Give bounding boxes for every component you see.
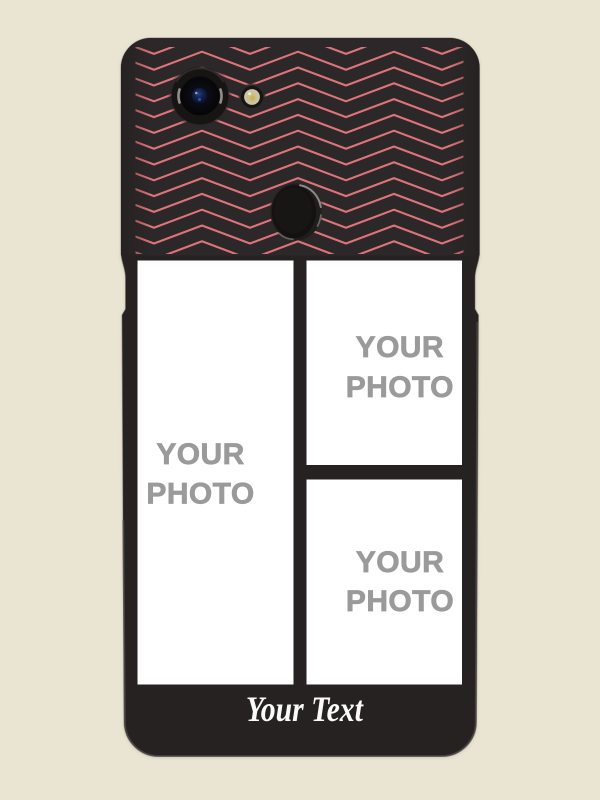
svg-text:YOUR: YOUR — [356, 546, 444, 579]
svg-text:PHOTO: PHOTO — [346, 585, 454, 618]
svg-text:PHOTO: PHOTO — [146, 478, 254, 511]
svg-text:YOUR: YOUR — [356, 331, 444, 364]
svg-text:YOUR: YOUR — [156, 438, 244, 471]
svg-text:Your Text: Your Text — [246, 689, 364, 729]
svg-text:PHOTO: PHOTO — [346, 371, 454, 404]
